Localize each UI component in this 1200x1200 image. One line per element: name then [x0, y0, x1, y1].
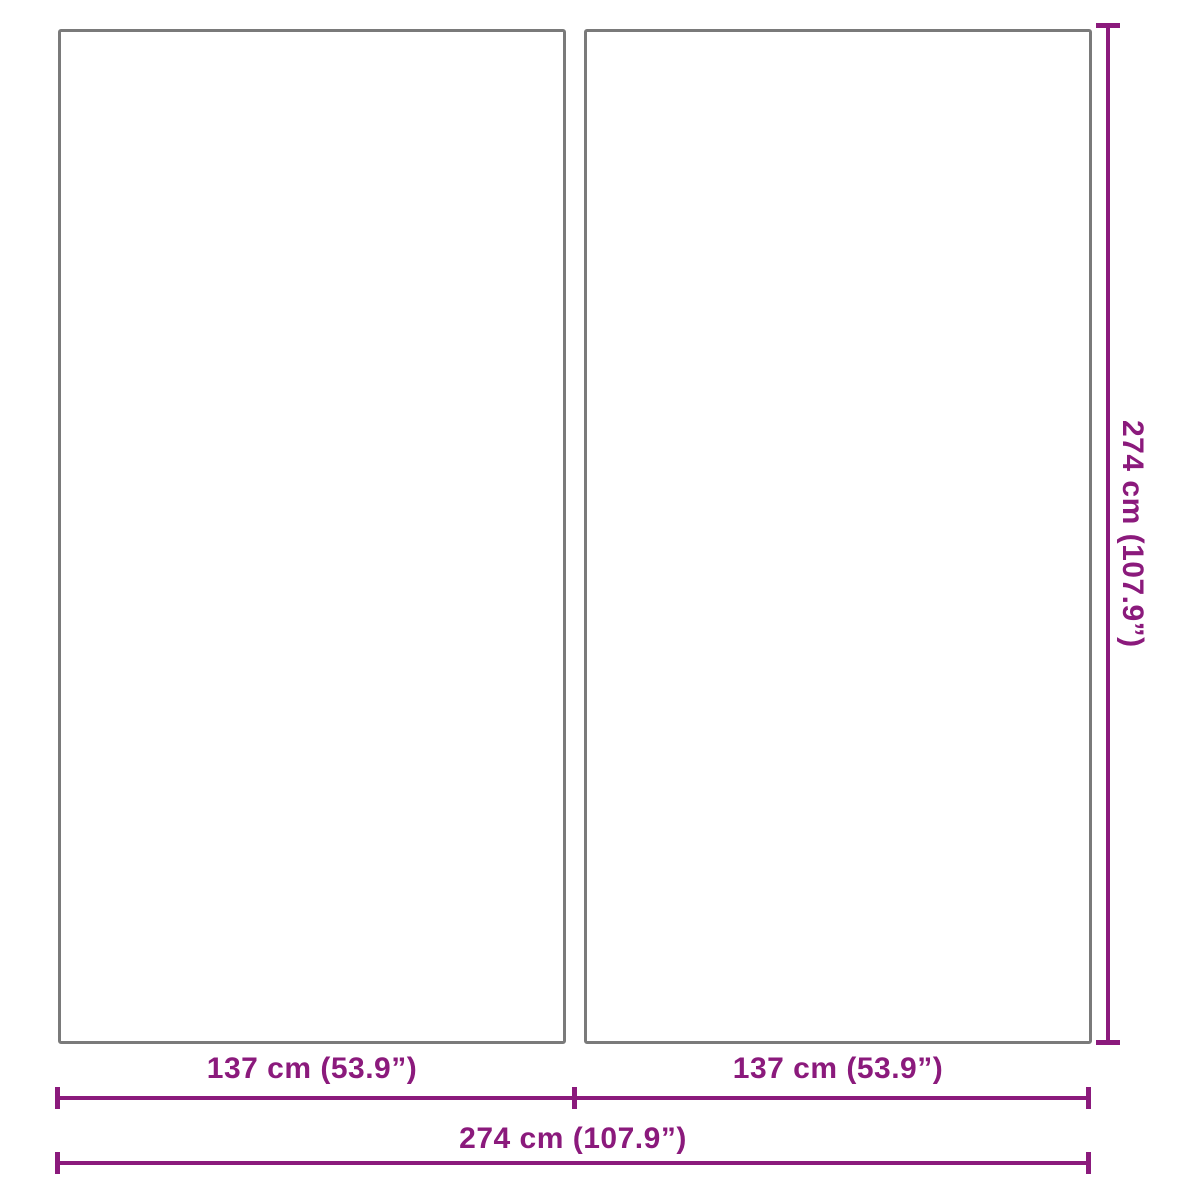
product-dimension-diagram: 274 cm (107.9”) 137 cm (53.9”) 137 cm (5…	[0, 0, 1200, 1200]
width-left-half-label: 137 cm (53.9”)	[58, 1053, 566, 1085]
width-total-left-tick	[55, 1152, 60, 1174]
width-halves-right-tick	[1086, 1087, 1091, 1109]
width-total-dimension-line	[57, 1161, 1089, 1165]
width-total-label: 274 cm (107.9”)	[57, 1123, 1089, 1155]
panel-right-outline	[584, 29, 1092, 1044]
width-total-right-tick	[1086, 1152, 1091, 1174]
height-dimension-label: 274 cm (107.9”)	[1110, 25, 1154, 1043]
width-halves-left-tick	[55, 1087, 60, 1109]
width-halves-middle-tick	[572, 1087, 577, 1109]
width-right-half-label: 137 cm (53.9”)	[584, 1053, 1092, 1085]
panel-left-outline	[58, 29, 566, 1044]
